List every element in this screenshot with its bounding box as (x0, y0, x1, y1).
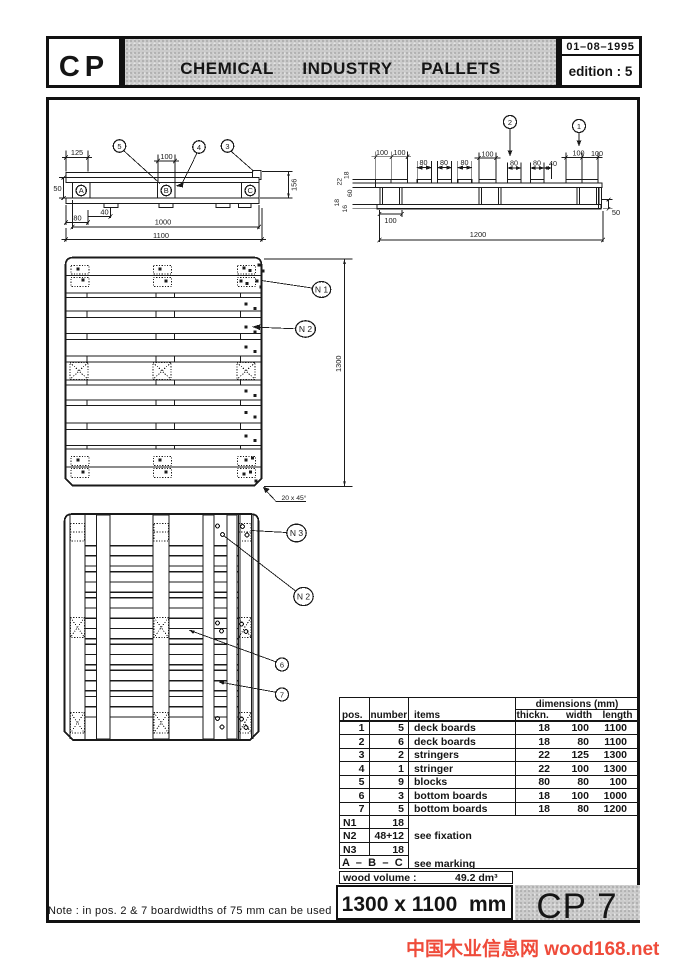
svg-text:60: 60 (347, 189, 354, 197)
svg-text:100: 100 (573, 149, 585, 158)
svg-text:6: 6 (280, 660, 284, 669)
svg-text:100: 100 (591, 149, 603, 158)
svg-text:80: 80 (533, 158, 541, 167)
svg-text:1: 1 (577, 122, 581, 131)
svg-text:N 1: N 1 (315, 284, 329, 294)
svg-text:18: 18 (334, 199, 341, 207)
svg-text:C: C (247, 186, 253, 195)
svg-text:1200: 1200 (470, 230, 486, 239)
svg-text:16: 16 (342, 205, 349, 213)
svg-text:A: A (79, 186, 84, 195)
svg-text:80: 80 (461, 158, 469, 167)
svg-text:80: 80 (420, 158, 428, 167)
svg-text:2: 2 (508, 118, 512, 127)
svg-text:100: 100 (394, 148, 406, 157)
svg-text:22: 22 (337, 178, 344, 186)
svg-text:N 2: N 2 (299, 324, 313, 334)
svg-text:156: 156 (290, 179, 299, 191)
svg-text:3: 3 (225, 142, 229, 151)
svg-text:1100: 1100 (153, 231, 169, 240)
svg-text:18: 18 (344, 171, 351, 179)
svg-text:100: 100 (376, 148, 388, 157)
svg-text:40: 40 (549, 159, 557, 168)
svg-text:1000: 1000 (155, 218, 171, 227)
svg-text:125: 125 (71, 148, 83, 157)
svg-text:1300: 1300 (334, 356, 343, 372)
svg-text:N 3: N 3 (290, 528, 304, 538)
svg-text:N 2: N 2 (297, 592, 311, 602)
svg-text:100: 100 (384, 216, 396, 225)
svg-text:80: 80 (510, 158, 518, 167)
svg-text:40: 40 (100, 207, 108, 216)
svg-text:100: 100 (482, 149, 494, 158)
svg-text:100: 100 (160, 152, 172, 161)
svg-text:80: 80 (440, 158, 448, 167)
svg-text:80: 80 (73, 213, 81, 222)
svg-text:50: 50 (53, 184, 61, 193)
svg-text:20 x 45°: 20 x 45° (281, 494, 306, 502)
svg-text:5: 5 (117, 142, 121, 151)
svg-text:4: 4 (197, 143, 201, 152)
svg-text:50: 50 (612, 208, 620, 217)
svg-text:B: B (164, 186, 169, 195)
svg-text:7: 7 (280, 690, 284, 699)
